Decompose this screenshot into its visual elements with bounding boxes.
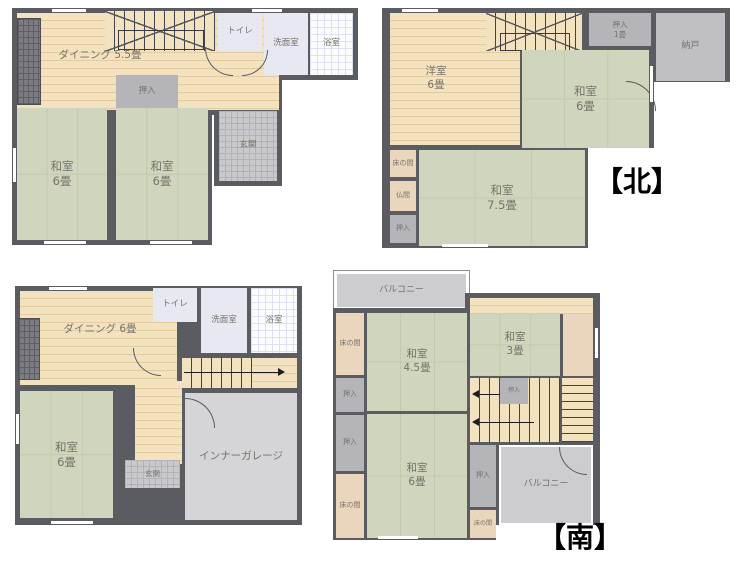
room-label: 床の間 xyxy=(340,501,361,510)
room-washitsu-6: 和室 6畳 xyxy=(367,414,467,538)
room-label: バルコニー xyxy=(379,285,424,297)
room-bath: 浴室 xyxy=(251,288,297,353)
window-marker xyxy=(650,66,653,102)
kitchen-counter xyxy=(17,18,41,105)
room-size-label: 4.5畳 xyxy=(403,362,430,376)
room-label: 和室 xyxy=(574,84,597,99)
room-oshiire-a: 押入 xyxy=(336,378,364,412)
room-label: 和室 xyxy=(407,462,428,476)
room-label: 床の間 xyxy=(393,159,414,168)
room-label: 洗面室 xyxy=(273,38,299,49)
room-washitsu: 和室 6畳 xyxy=(20,391,113,518)
room-size-label: 5.5畳 xyxy=(114,49,141,61)
stair-outline xyxy=(500,33,569,51)
window-marker xyxy=(44,241,86,244)
window-marker xyxy=(150,241,192,244)
room-label: 和室 xyxy=(407,348,428,362)
window-marker xyxy=(378,536,418,539)
room-dining-label: ダイニング 5.5畳 xyxy=(50,48,150,62)
room-washroom: 洗面室 xyxy=(201,288,247,353)
direction-label-south: 【南】 xyxy=(538,524,622,552)
window-marker xyxy=(52,9,86,12)
floor-plan-north-1f: トイレ 洗面室 浴室 押入 和室 6畳 和室 6畳 玄関 ダイニング 5.5畳 xyxy=(12,8,358,245)
room-label: 洗面室 xyxy=(211,315,237,326)
window-marker xyxy=(402,9,438,12)
room-washroom: 洗面室 xyxy=(264,13,308,75)
hallway-floor xyxy=(252,358,297,388)
room-label: 押入 xyxy=(138,86,155,97)
window-marker xyxy=(49,287,87,290)
room-butsuma: 仏間 xyxy=(390,181,416,211)
room-label: 洋室 xyxy=(426,65,447,79)
room-label: 押入 xyxy=(396,224,410,233)
room-label: 押入 xyxy=(476,471,490,480)
window-marker xyxy=(252,9,282,12)
room-dining-label: ダイニング 6畳 xyxy=(45,322,155,336)
direction-label-north: 【北】 xyxy=(595,168,679,196)
room-label: 床の間 xyxy=(340,339,361,348)
staircase xyxy=(105,11,215,51)
stair-outline xyxy=(118,30,204,50)
room-genkan: 玄関 xyxy=(219,111,277,181)
room-label: ダイニング xyxy=(63,323,116,335)
window-marker xyxy=(16,414,19,444)
room-label: 和室 xyxy=(151,159,174,174)
stair-arrow xyxy=(474,422,534,423)
room-size-label: 6畳 xyxy=(53,174,72,189)
room-washitsu-3: 和室 3畳 xyxy=(470,314,560,376)
room-label: 玄関 xyxy=(145,469,160,479)
room-oshiire: 押入 xyxy=(390,215,416,243)
room-label: 玄関 xyxy=(239,140,256,151)
room-label: 浴室 xyxy=(323,38,340,49)
room-youshitsu: 洋室 6畳 xyxy=(390,13,482,145)
room-label: 押入 xyxy=(343,390,357,399)
room-label: 和室 xyxy=(51,159,74,174)
room-tokonoma: 床の間 xyxy=(390,150,416,177)
room-oshiire-stairs: 押入 xyxy=(500,378,528,404)
window-marker xyxy=(595,328,598,358)
floor-plan-sheet: トイレ 洗面室 浴室 押入 和室 6畳 和室 6畳 玄関 ダイニング 5.5畳 xyxy=(0,0,743,577)
room-oshiire-b: 押入 xyxy=(336,415,364,471)
room-label: 押入 xyxy=(613,20,628,30)
room-washitsu-right: 和室 6畳 xyxy=(116,108,208,240)
room-label: 仏間 xyxy=(396,191,410,200)
room-label: バルコニー xyxy=(524,479,569,491)
room-label: 和室 xyxy=(491,183,514,198)
room-washitsu-left: 和室 6畳 xyxy=(17,108,107,240)
room-tokonoma-bottom: 床の間 xyxy=(336,474,364,538)
room-size-label: 1畳 xyxy=(614,30,626,40)
stair-arrow-head xyxy=(472,418,479,426)
staircase-landing xyxy=(562,378,593,442)
room-label: 和室 xyxy=(505,331,526,345)
hallway-floor xyxy=(470,298,593,314)
room-size-label: 6畳 xyxy=(153,174,172,189)
room-oshiire: 押入 xyxy=(116,75,178,108)
hallway-floor xyxy=(135,381,182,464)
room-label: ダイニング xyxy=(58,49,111,61)
room-label: 押入 xyxy=(343,438,357,447)
room-label: 浴室 xyxy=(265,315,282,326)
kitchen-counter xyxy=(18,318,40,380)
room-size-label: 6畳 xyxy=(427,79,444,93)
window-marker xyxy=(13,148,16,182)
room-size-label: 7.5畳 xyxy=(487,198,517,213)
room-oshiire-1jo: 押入 1畳 xyxy=(589,13,651,46)
room-label: 和室 xyxy=(55,440,78,455)
room-size-label: 6畳 xyxy=(119,323,136,335)
room-oshiire-c: 押入 xyxy=(470,445,496,507)
floor-plan-south-1f: トイレ 洗面室 浴室 和室 6畳 玄関 インナーガレージ ダイニング 6畳 xyxy=(15,286,302,525)
room-tokonoma-top: 床の間 xyxy=(336,313,364,375)
room-label: 床の間 xyxy=(474,520,492,528)
room-balcony-top: バルコニー xyxy=(337,274,466,307)
room-label: 納戸 xyxy=(681,41,699,53)
stair-arrow-head xyxy=(472,390,479,398)
closet-strip xyxy=(563,314,593,376)
stair-arrow-head xyxy=(278,368,285,376)
room-size-label: 3畳 xyxy=(506,345,523,359)
floor-plan-north-2f: 洋室 6畳 押入 1畳 納戸 和室 6畳 床の間 仏間 押入 和室 7.5畳 xyxy=(382,8,730,248)
room-nando: 納戸 xyxy=(656,13,725,81)
floor-plan-south-2f: バルコニー 和室 3畳 押入 床の間 押入 押入 床の間 xyxy=(333,270,600,545)
window-marker xyxy=(442,244,488,247)
room-label: トイレ xyxy=(162,299,188,310)
room-tokonoma-small: 床の間 xyxy=(470,510,496,538)
room-size-label: 6畳 xyxy=(408,476,425,490)
staircase xyxy=(486,13,582,51)
room-size-label: 6畳 xyxy=(57,455,76,470)
room-toilet: トイレ xyxy=(153,288,197,322)
room-label: トイレ xyxy=(227,26,253,37)
room-bath: 浴室 xyxy=(310,13,353,75)
room-washitsu-45: 和室 4.5畳 xyxy=(367,313,467,411)
room-washitsu-75: 和室 7.5畳 xyxy=(419,150,585,246)
room-genkan: 玄関 xyxy=(125,460,180,488)
room-toilet: トイレ xyxy=(218,13,262,51)
room-size-label: 6畳 xyxy=(576,99,595,114)
room-label: インナーガレージ xyxy=(199,450,283,464)
staircase xyxy=(182,358,252,388)
room-label: 押入 xyxy=(508,387,520,395)
stair-arrow xyxy=(184,372,279,373)
window-marker xyxy=(51,521,93,524)
